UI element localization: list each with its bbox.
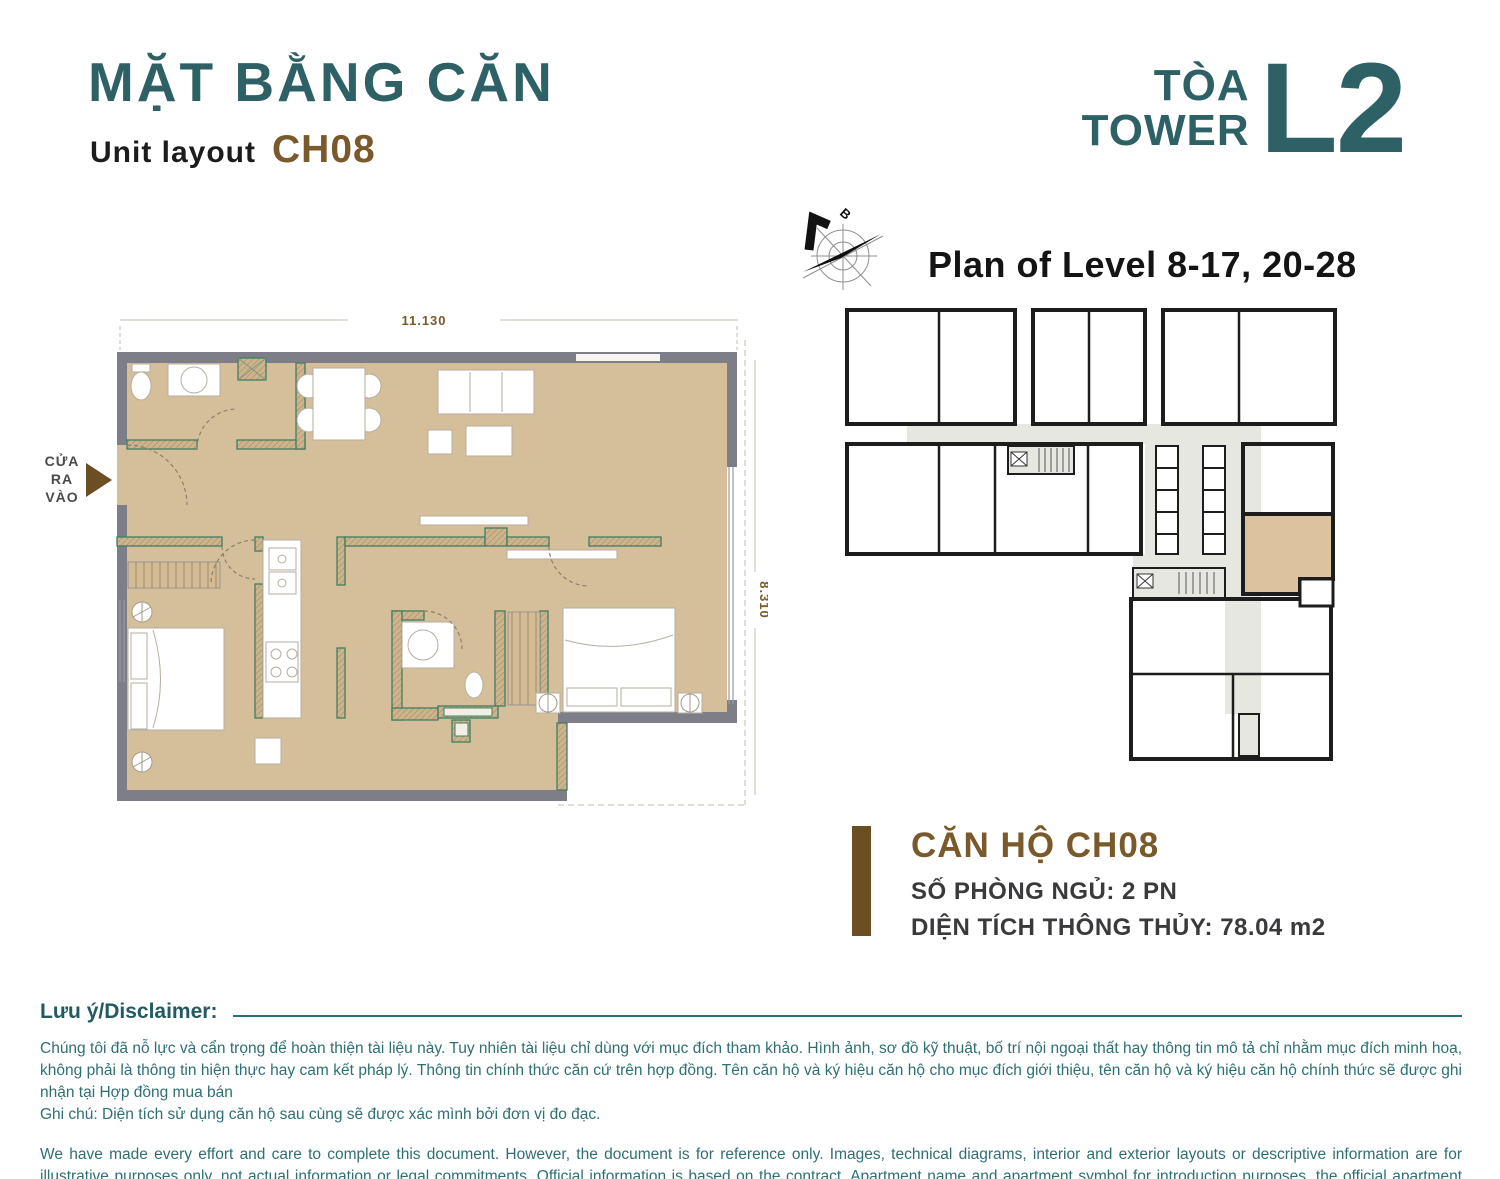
disclaimer-vi: Chúng tôi đã nỗ lực và cẩn trọng để hoàn… [40, 1038, 1462, 1104]
tower-code: L2 [1260, 50, 1405, 168]
disclaimer-en: We have made every effort and care to co… [40, 1144, 1462, 1179]
unit-info-area: DIỆN TÍCH THÔNG THỦY: 78.04 m2 [911, 914, 1326, 942]
disclaimer-section: Lưu ý/Disclaimer: Chúng tôi đã nỗ lực và… [40, 1000, 1462, 1179]
compass-icon: B [795, 196, 887, 292]
disclaimer-vi-note: Ghi chú: Diện tích sử dụng căn hộ sau cù… [40, 1104, 1462, 1126]
unit-info-bedrooms: SỐ PHÒNG NGỦ: 2 PN [911, 878, 1326, 906]
unit-floorplan: 11.130 8.310 [108, 300, 768, 810]
page-subtitle: Unit layout CH08 [90, 128, 376, 172]
compass-label: B [837, 205, 854, 222]
entrance-label: CỬA RA VÀO [36, 452, 88, 507]
wardrobe-bedroom1 [128, 562, 220, 588]
unit-info: CĂN HỘ CH08 SỐ PHÒNG NGỦ: 2 PN DIỆN TÍCH… [852, 826, 1326, 950]
wardrobe-bedroom2 [508, 612, 540, 705]
lower-corridor [1239, 714, 1259, 756]
accent-bar [852, 826, 871, 936]
stair-core-2 [1133, 568, 1225, 598]
unit-code: CH08 [272, 128, 376, 172]
subtitle-label: Unit layout [90, 136, 256, 170]
brochure-page: MẶT BẰNG CĂN Unit layout CH08 TÒA TOWER … [0, 0, 1500, 1179]
page-title: MẶT BẰNG CĂN [88, 50, 555, 114]
divider-line [233, 1015, 1462, 1017]
disclaimer-heading: Lưu ý/Disclaimer: [40, 1000, 217, 1024]
unit-info-title: CĂN HỘ CH08 [911, 826, 1326, 866]
plan-level-text: Plan of Level 8-17, 20-28 [928, 244, 1357, 286]
tower-label-vi: TÒA [1082, 64, 1250, 109]
stair-core-1 [1008, 446, 1074, 474]
dim-width-label: 11.130 [401, 313, 446, 328]
tower-words: TÒA TOWER [1082, 64, 1250, 154]
tower-label-en: TOWER [1082, 109, 1250, 154]
tower-keyplan [843, 306, 1427, 786]
tower-title: TÒA TOWER L2 [985, 50, 1405, 168]
dim-height-label: 8.310 [757, 581, 768, 619]
